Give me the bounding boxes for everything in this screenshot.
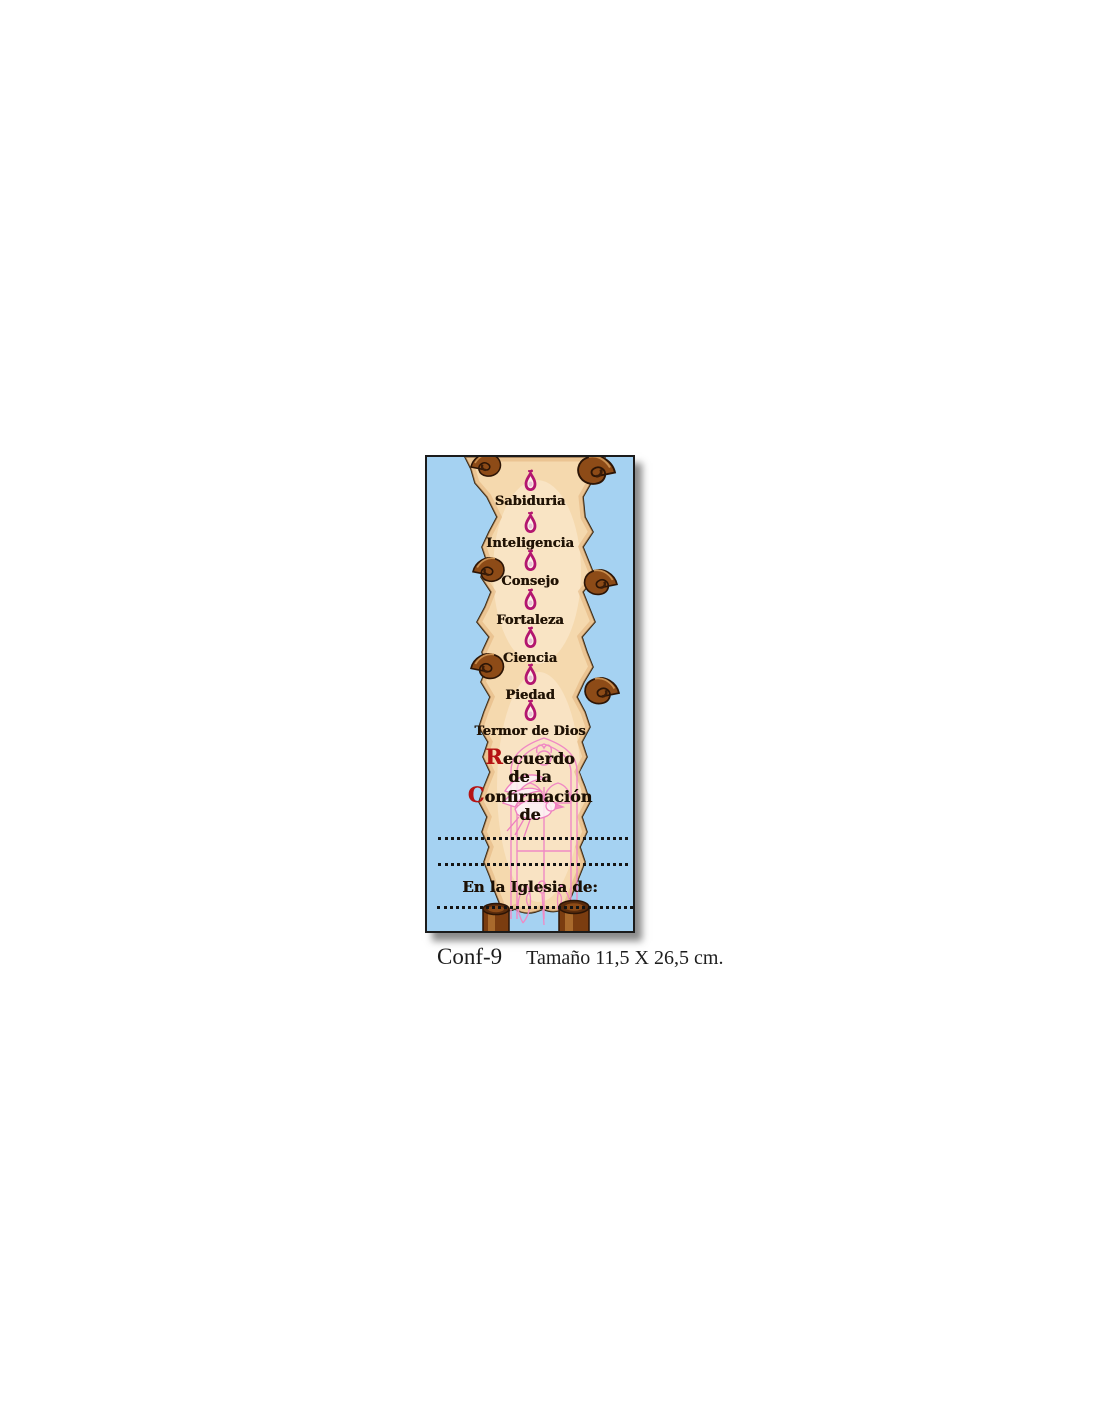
memorial-line-1: Recuerdo [427, 748, 633, 768]
church-write-line [437, 906, 633, 909]
gift-label: Sabiduria [495, 495, 566, 509]
gift-row-temor-de-dios: Termor de Dios [427, 699, 633, 739]
name-write-line-2 [438, 863, 628, 866]
gift-row-fortaleza: Fortaleza [427, 588, 633, 628]
gift-row-consejo: Consejo [427, 549, 633, 589]
flame-icon [523, 511, 538, 534]
flame-icon [523, 626, 538, 649]
gift-label: Termor de Dios [474, 725, 585, 739]
flame-icon [523, 699, 538, 722]
flame-icon [523, 588, 538, 611]
gift-label: Consejo [501, 575, 558, 589]
memorial-line-4: de [427, 806, 633, 824]
product-code: Conf-9 [437, 944, 502, 969]
memorial-line-3: Confirmación [427, 786, 633, 806]
church-label: En la Iglesia de: [427, 878, 633, 896]
flame-icon [523, 469, 538, 492]
gift-row-sabiduria: Sabiduria [427, 469, 633, 509]
product-caption: Conf-9Tamaño 11,5 X 26,5 cm. [437, 944, 723, 970]
product-size: Tamaño 11,5 X 26,5 cm. [526, 947, 723, 969]
flame-icon [523, 663, 538, 686]
name-write-line-1 [438, 837, 628, 840]
product-image[interactable]: Sabiduria Inteligencia Consejo Fortaleza… [425, 455, 635, 933]
gift-row-inteligencia: Inteligencia [427, 511, 633, 551]
flame-icon [523, 549, 538, 572]
gift-row-ciencia: Ciencia [427, 626, 633, 666]
memorial-line-2: de la [427, 768, 633, 786]
memorial-title: Recuerdo de la Confirmación de [427, 748, 633, 824]
gift-row-piedad: Piedad [427, 663, 633, 703]
drop-cap-r: R [485, 744, 502, 769]
drop-cap-c: C [468, 782, 485, 807]
